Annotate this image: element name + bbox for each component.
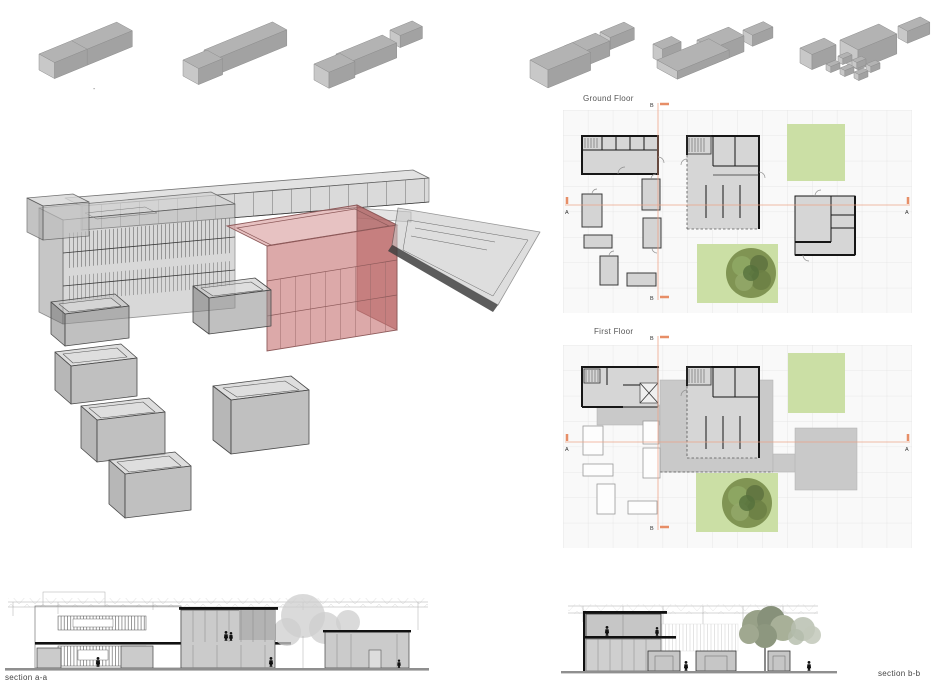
ground-line: [561, 671, 837, 673]
section-bb-label: section b-b: [878, 669, 921, 678]
section-aa-drawing: section a-a: [3, 586, 433, 682]
presentation-board: -: [0, 0, 942, 688]
green-court-ne: [787, 124, 845, 181]
roof-slab: [583, 611, 667, 614]
svg-text:B: B: [650, 336, 654, 342]
green-court-ne: [788, 353, 845, 413]
tree-icon: [722, 478, 772, 528]
building-northwest: [582, 136, 664, 174]
svg-text:B: B: [650, 296, 654, 302]
axon-right-wing: [388, 208, 540, 312]
floor-slab: [584, 636, 676, 639]
axon-pavilions: [51, 278, 309, 518]
building-east: [795, 190, 855, 261]
massing-diagram-4-stepped: [524, 4, 634, 89]
massing-diagram-5-courtyard: [645, 2, 780, 87]
ground-line: [5, 668, 429, 671]
building-northwest: [581, 367, 659, 407]
section-aa-label: section a-a: [5, 673, 48, 682]
massing-diagram-2-lshape: [168, 2, 293, 87]
section-bb-drawing: section b-b: [553, 584, 938, 680]
building-central: [681, 367, 760, 458]
first-floor-plan: B B A A: [563, 330, 912, 558]
stray-mark: -: [93, 86, 95, 93]
svg-text:A: A: [565, 210, 569, 216]
svg-text:A: A: [905, 447, 909, 453]
axonometric-view: [25, 158, 550, 568]
svg-text:A: A: [905, 210, 909, 216]
section-middle-building: [179, 607, 278, 668]
pavilion-boxes: [648, 651, 790, 671]
axon-left-end-box: [27, 194, 89, 240]
svg-text:B: B: [650, 526, 654, 532]
roof-slab: [323, 630, 411, 632]
svg-text:A: A: [565, 447, 569, 453]
svg-text:B: B: [650, 103, 654, 109]
tree-icon: [726, 248, 776, 298]
roof-slab: [179, 607, 278, 610]
massing-diagram-6-cluster: [796, 0, 936, 92]
massing-diagram-1-bar: [25, 4, 140, 89]
massing-diagram-3-split: [302, 2, 427, 87]
ground-floor-plan: B B A A: [563, 97, 912, 315]
building-central: [681, 136, 765, 229]
